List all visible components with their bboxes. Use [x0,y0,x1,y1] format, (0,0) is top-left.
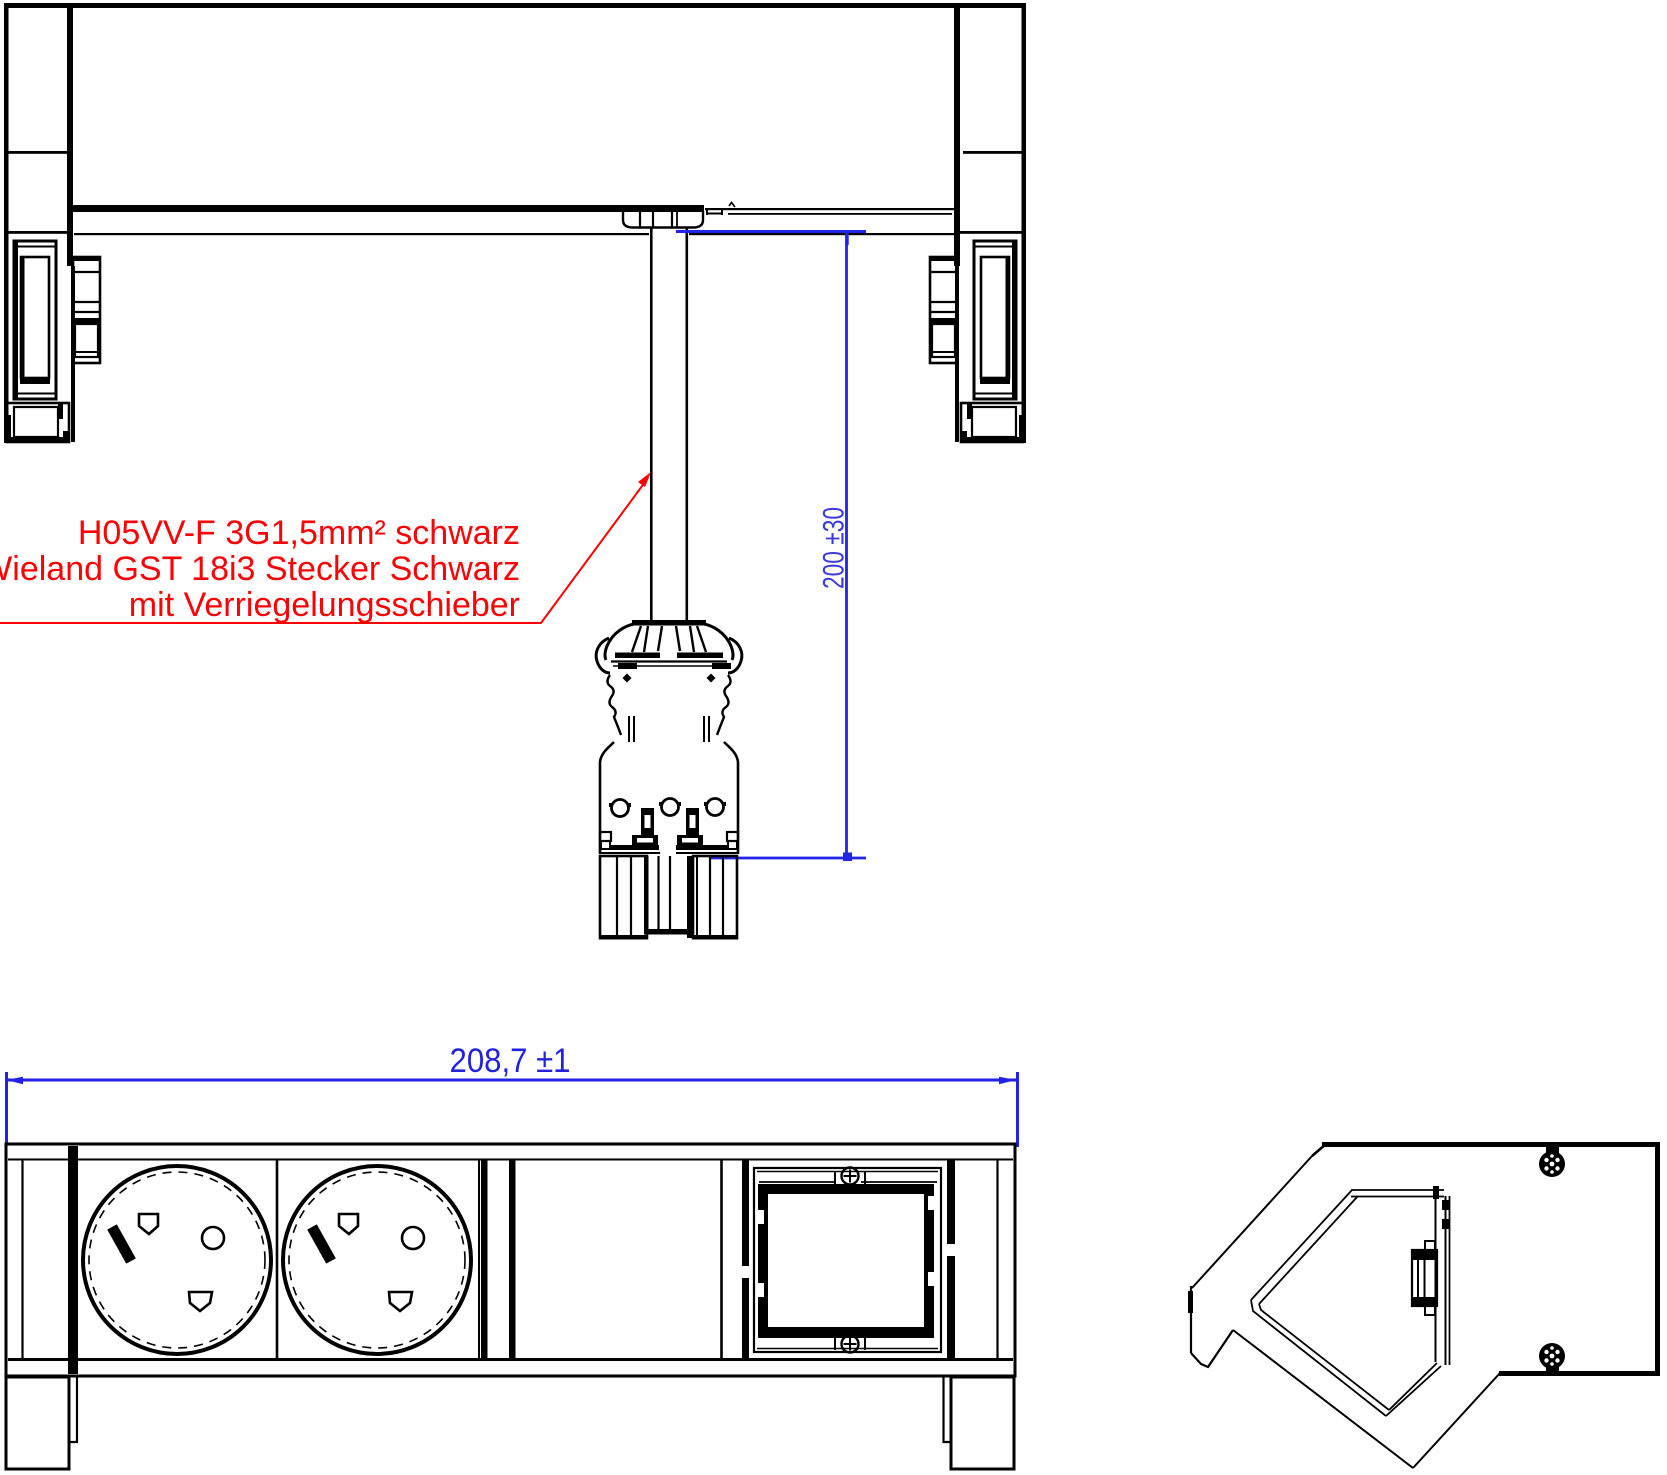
svg-text:200 ±30: 200 ±30 [818,507,851,589]
svg-text:H05VV-F 3G1,5mm² schwarz: H05VV-F 3G1,5mm² schwarz [78,514,520,552]
svg-text:mit Verriegelungsschieber: mit Verriegelungsschieber [129,586,520,624]
svg-text:Wieland GST 18i3 Stecker Schwa: Wieland GST 18i3 Stecker Schwarz [0,550,520,588]
svg-text:208,7 ±1: 208,7 ±1 [450,1042,571,1080]
